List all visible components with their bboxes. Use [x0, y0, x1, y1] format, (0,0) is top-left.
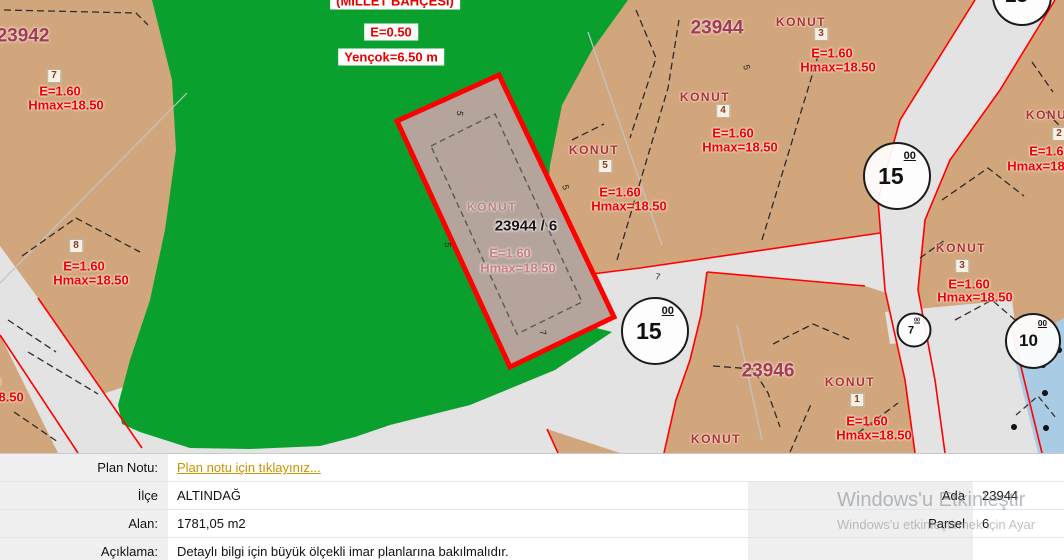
zoning-hmax-label-cut: Hmax=18.50 [0, 391, 24, 404]
zoning-e-label: E=1.60 [811, 47, 853, 60]
zoning-hmax-label: Hmax=18.50 [53, 274, 129, 287]
parcel-badge: 3 [814, 27, 828, 41]
zoning-hmax-label: Hmax=18.50 [702, 141, 778, 154]
road-width-value: 15 [636, 318, 662, 345]
park-name-label: (MİLLET BAHÇESİ) [330, 0, 460, 10]
boundary-tick: 5 [560, 184, 571, 191]
konut-label: KONUT [1026, 109, 1064, 121]
road-width-value: 15 [878, 163, 904, 190]
plan-notu-label: Plan Notu: [0, 454, 168, 481]
boundary-tick: 5 [741, 64, 752, 71]
zoning-hmax-label: Hmax=18.50 [937, 291, 1013, 304]
road-width-value: 10 [1019, 331, 1038, 351]
road-width-circle-7: 700 [897, 313, 932, 348]
parcel-info-panel: Plan Notu: Plan notu için tıklayınız... … [0, 453, 1064, 560]
boundary-tick: 7 [538, 329, 549, 336]
ada-value: 23944 [973, 488, 1064, 503]
parcel-badge: 5 [598, 159, 612, 173]
zoning-e-label: E=1.60 [63, 260, 105, 273]
parcel-badge: 3 [955, 259, 969, 273]
block-number-23944: 23944 [691, 19, 744, 38]
road-width-decimal: 00 [1038, 319, 1047, 328]
boundary-tick: 7 [655, 271, 662, 282]
konut-label: KONUT [569, 144, 619, 156]
road-width-circle-15-cut: 1500 [992, 0, 1052, 26]
konut-label: KONUT [680, 91, 730, 103]
panel-row-ilce: İlçe ALTINDAĞ Ada 23944 [0, 482, 1064, 510]
row-right-empty [748, 454, 973, 481]
map-labels: 23942 23944 23946 (MİLLET BAHÇESİ) E=0.5… [0, 0, 1064, 453]
boundary-tick: 5 [443, 242, 453, 248]
road-width-decimal: 00 [904, 150, 916, 162]
block-number-23946: 23946 [742, 362, 795, 381]
zoning-e-label-cut: E=1.60 [0, 376, 1, 389]
road-width-value: 7 [908, 324, 914, 336]
park-yencok-label: Yençok=6.50 m [338, 49, 444, 66]
road-width-circle-15: 1500 [621, 297, 689, 365]
parcel-badge: 7 [47, 69, 61, 83]
zoning-e-label: E=1.60 [599, 186, 641, 199]
road-width-circle-15: 1500 [863, 142, 931, 210]
panel-row-alan: Alan: 1781,05 m2 Parsel 6 [0, 510, 1064, 538]
parsel-label: Parsel [748, 510, 973, 537]
alan-label: Alan: [0, 510, 168, 537]
zoning-map[interactable]: 23942 23944 23946 (MİLLET BAHÇESİ) E=0.5… [0, 0, 1064, 453]
parsel-value: 6 [973, 516, 1064, 531]
zoning-hmax-label: Hmax=18.50 [591, 200, 667, 213]
zoning-hmax-label: Hmax=18.50 [28, 99, 104, 112]
zoning-e-label: E=1.60 [39, 85, 81, 98]
selected-parcel-hmax-label: Hmax=18.50 [480, 262, 556, 275]
parcel-badge: 4 [716, 104, 730, 118]
parcel-badge: 8 [69, 239, 83, 253]
selected-parcel-konut-label: KONUT [467, 201, 517, 213]
alan-value: 1781,05 m2 [168, 516, 748, 531]
konut-label: KONUT [936, 242, 986, 254]
ada-label: Ada [748, 482, 973, 509]
zoning-hmax-label: Hmax=18.50 [836, 429, 912, 442]
zoning-hmax-label: Hmax=18.50 [800, 61, 876, 74]
parcel-badge: 2 [1052, 127, 1064, 141]
road-width-circle-10: 1000 [1005, 313, 1061, 369]
boundary-tick: 5 [455, 110, 466, 117]
zoning-e-label: E=1.60 [1029, 145, 1064, 158]
konut-label: KONUT [691, 433, 741, 445]
road-width-decimal: 00 [914, 317, 920, 323]
zoning-e-label: E=1.60 [712, 127, 754, 140]
zoning-hmax-label: Hmax=18.50 [1007, 160, 1064, 173]
road-width-value: 15 [1005, 0, 1028, 8]
ilce-value: ALTINDAĞ [168, 488, 748, 503]
park-e-label: E=0.50 [364, 24, 418, 41]
aciklama-label: Açıklama: [0, 538, 168, 560]
konut-label: KONUT [825, 376, 875, 388]
selected-parcel-e-label: E=1.60 [489, 247, 531, 260]
ilce-label: İlçe [0, 482, 168, 509]
block-number-23942: 23942 [0, 27, 49, 46]
panel-row-aciklama: Açıklama: Detaylı bilgi için büyük ölçek… [0, 538, 1064, 560]
aciklama-value: Detaylı bilgi için büyük ölçekli imar pl… [168, 544, 748, 559]
row-right-empty [748, 538, 973, 560]
plan-notu-link[interactable]: Plan notu için tıklayınız... [177, 460, 321, 475]
selected-parcel-number: 23944 / 6 [495, 219, 558, 234]
parcel-badge: 1 [850, 393, 864, 407]
app-window: 23942 23944 23946 (MİLLET BAHÇESİ) E=0.5… [0, 0, 1064, 560]
road-width-decimal: 00 [662, 305, 674, 317]
panel-row-plan-notu: Plan Notu: Plan notu için tıklayınız... [0, 454, 1064, 482]
zoning-e-label: E=1.60 [846, 415, 888, 428]
